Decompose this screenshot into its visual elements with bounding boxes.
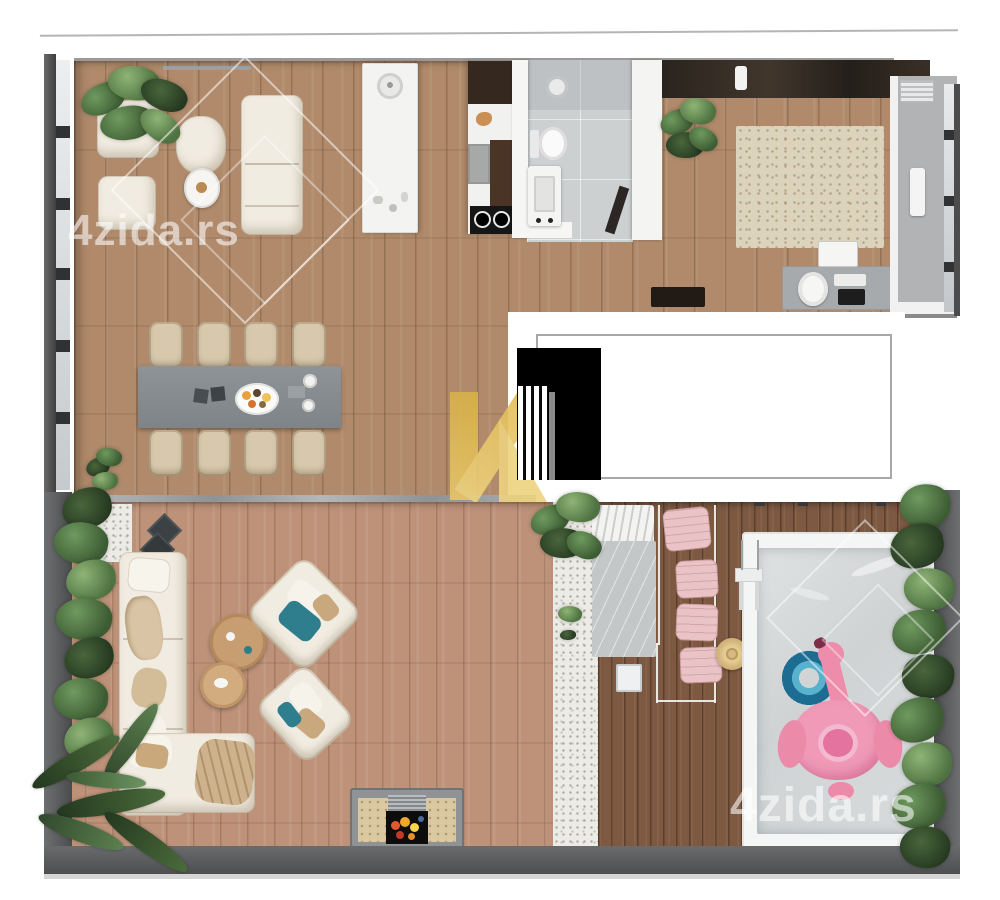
curtain-stripe-gray [549, 392, 555, 480]
left-wall [44, 54, 56, 494]
pool-ladder-stem [741, 540, 743, 570]
watermark-text: 4zida.rs [68, 206, 240, 256]
dining-chair [149, 322, 183, 368]
side-table-small [616, 664, 642, 692]
terrace-plant [530, 492, 604, 572]
pool-ladder-stem [757, 540, 759, 570]
flamingo-hole [818, 724, 858, 762]
vanity-sink [528, 166, 561, 226]
food-platter-icon [235, 383, 279, 415]
dining-chair [197, 322, 231, 368]
bedroom-plant-icon [658, 98, 720, 164]
window-mullion [944, 196, 954, 206]
bedroom-rug [736, 126, 884, 248]
coffee-table-round-small [200, 662, 246, 708]
cooktop-icon [470, 206, 513, 234]
deck-trim [656, 643, 658, 703]
perfume-bottle-icon [735, 66, 747, 90]
kitchen-cabinet-dark [468, 61, 514, 104]
window-mullion [56, 268, 70, 280]
table-decor-cube [193, 388, 209, 404]
window-mullion [56, 412, 70, 424]
door-handle-mark [876, 502, 886, 506]
dining-chair [244, 430, 278, 476]
shower-zone [527, 60, 633, 110]
keyboard-icon [834, 274, 866, 286]
watermark-text: 4zida.rs [730, 778, 917, 833]
deck-cushion-pink [662, 506, 712, 553]
window-mullion [56, 126, 70, 138]
desk-chair [798, 272, 828, 306]
palm-plants [26, 712, 206, 882]
ac-unit-icon [900, 80, 934, 102]
napkin-box [288, 386, 305, 398]
jug-icon [303, 374, 317, 388]
shower-drain-icon [546, 76, 568, 98]
fire-window [386, 811, 428, 844]
outdoor-fireplace [350, 788, 464, 848]
dining-chair [292, 430, 326, 476]
shoe-bench [651, 287, 705, 307]
cup-icon [302, 399, 315, 412]
toilet-icon [530, 130, 539, 158]
window-mullion [56, 340, 70, 352]
bathroom-wall [512, 60, 528, 238]
door-handle [910, 168, 925, 216]
dining-chair [149, 430, 183, 476]
pool-ladder-icon [735, 568, 763, 582]
dining-chair [292, 322, 326, 368]
door-handle-mark [798, 502, 808, 506]
counter-sink [468, 144, 490, 184]
balcony-outer-wall [954, 84, 960, 316]
toilet-bowl [539, 127, 567, 160]
deck-trim [658, 505, 660, 645]
dining-chair [197, 430, 231, 476]
curtain-stripes [518, 386, 548, 480]
window-mullion [944, 130, 954, 140]
window-mullion [944, 262, 954, 272]
door-handle-mark [755, 502, 765, 506]
pool-ladder-rail [755, 582, 759, 610]
deck-cushion-pink [675, 559, 719, 599]
dining-chair [244, 322, 278, 368]
laptop-icon [818, 241, 858, 267]
sofa-pillow [127, 556, 172, 594]
floorplan-render: NEKRETNINE [0, 0, 1000, 900]
moss-patch [560, 630, 576, 640]
table-decor-cube [210, 386, 225, 401]
pool-ladder-rail [739, 582, 743, 610]
printer-icon [838, 289, 865, 305]
kitchen-cabinet-brown [490, 140, 514, 210]
deck-cushion-pink [675, 603, 718, 641]
balcony-frame [890, 76, 898, 314]
kitchen-island [362, 63, 418, 233]
deck-trim [656, 700, 716, 702]
